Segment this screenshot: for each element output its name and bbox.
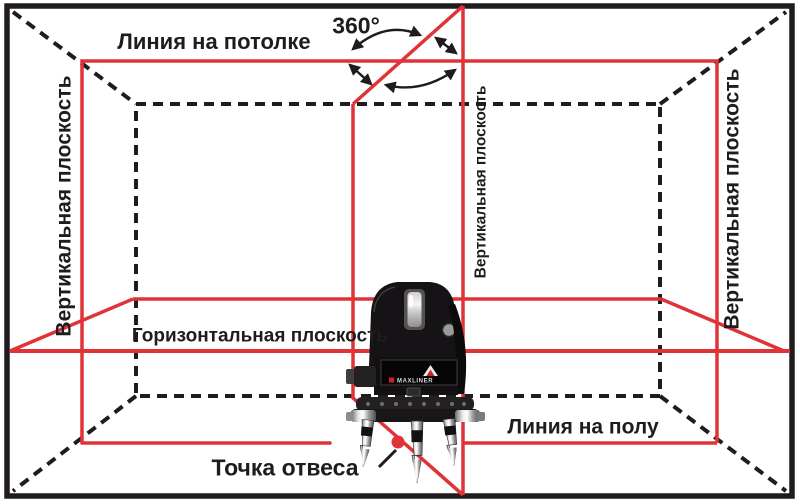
room-front-border xyxy=(7,6,792,496)
plumb-point-pointer-line xyxy=(379,450,396,467)
device-left-knob-base xyxy=(354,366,376,387)
horizontal-plane-label: Горизонтальная плоскость xyxy=(132,327,388,346)
device-leg-left xyxy=(357,419,374,467)
plumb-point-label: Точка отвеса xyxy=(211,457,358,480)
vertical-plane-right-label: Вертикальная плоскость xyxy=(722,68,743,329)
rotation-360-label: 360° xyxy=(332,15,380,38)
device-clamp-right-cap xyxy=(477,412,485,421)
rotation-arc-lower-icon xyxy=(386,70,455,87)
laser-level-room-diagram: MAXLINER Л xyxy=(0,0,800,504)
vertical-plane-middle-label: Вертикальная плоскость xyxy=(473,86,489,279)
diagram-canvas: MAXLINER xyxy=(0,0,800,504)
device-window-glint xyxy=(409,295,413,307)
plumb-point-dot xyxy=(392,436,405,449)
device-model-text: MAXLINER xyxy=(397,379,433,385)
rotation-arrow-right-icon xyxy=(436,38,456,53)
room-structure xyxy=(7,6,792,496)
device-front-button xyxy=(407,388,420,396)
vertical-plane-left-label: Вертикальная плоскость xyxy=(54,75,75,336)
rotation-arrow-left-icon xyxy=(350,65,371,84)
floor-line-label: Линия на полу xyxy=(507,417,658,438)
device-clamp-left-cap xyxy=(346,412,353,421)
device-clamp-right xyxy=(455,410,480,422)
ceiling-line-label: Линия на потолке xyxy=(117,31,310,53)
device-leg-right xyxy=(443,418,460,466)
device-base-top xyxy=(356,397,474,411)
brand-red-chip xyxy=(389,378,394,383)
